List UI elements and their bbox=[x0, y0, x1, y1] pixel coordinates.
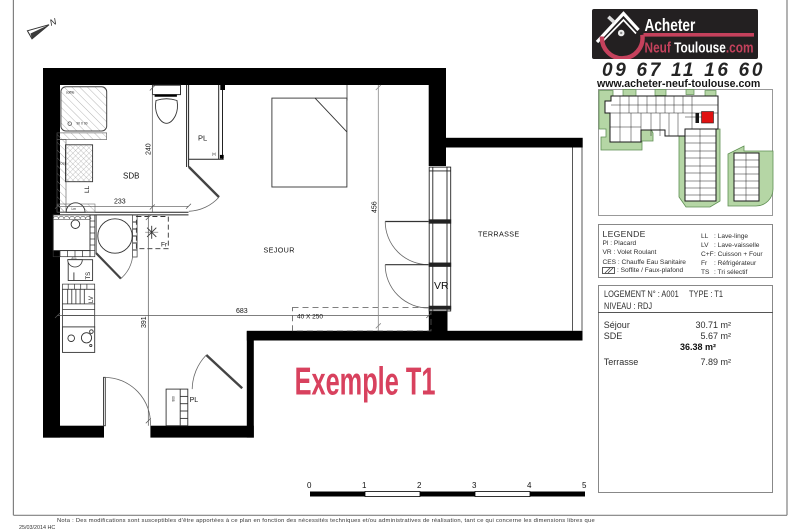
svg-text:dim: dim bbox=[72, 256, 77, 260]
svg-text:SDB: SDB bbox=[123, 172, 139, 181]
svg-text:240: 240 bbox=[146, 143, 153, 155]
svg-text:2: 2 bbox=[417, 481, 422, 490]
svg-text:PL: PL bbox=[190, 397, 199, 404]
svg-text:1: 1 bbox=[362, 481, 367, 490]
svg-text:Exemple T1: Exemple T1 bbox=[295, 359, 436, 403]
svg-text:391: 391 bbox=[141, 316, 148, 328]
svg-text:456: 456 bbox=[371, 201, 378, 213]
svg-text:683: 683 bbox=[236, 308, 248, 315]
svg-text:SEJOUR: SEJOUR bbox=[264, 246, 295, 255]
svg-text:soffite: soffite bbox=[66, 91, 75, 95]
svg-text:90 X 90: 90 X 90 bbox=[77, 122, 88, 126]
svg-text:Fr: Fr bbox=[161, 242, 168, 249]
svg-text:LL: LL bbox=[84, 185, 91, 193]
svg-text:PL: PL bbox=[198, 134, 207, 143]
svg-text:VR: VR bbox=[434, 280, 449, 292]
svg-text:233: 233 bbox=[114, 199, 126, 206]
svg-text:800: 800 bbox=[172, 396, 176, 402]
svg-text:TERRASSE: TERRASSE bbox=[478, 230, 520, 239]
svg-text:N: N bbox=[48, 16, 58, 28]
svg-text:TS: TS bbox=[86, 272, 92, 280]
svg-text:Ces: Ces bbox=[60, 162, 66, 166]
svg-text:5: 5 bbox=[582, 481, 587, 490]
svg-text:0: 0 bbox=[307, 481, 312, 490]
svg-text:LV: LV bbox=[89, 296, 95, 303]
svg-text:3: 3 bbox=[472, 481, 477, 490]
svg-text:Neuf Toulouse.com: Neuf Toulouse.com bbox=[645, 39, 754, 56]
svg-text:40 X 250: 40 X 250 bbox=[297, 314, 323, 321]
svg-text:4: 4 bbox=[527, 481, 532, 490]
svg-text:Lm: Lm bbox=[72, 207, 77, 211]
svg-text:Acheter: Acheter bbox=[645, 17, 696, 36]
svg-text:(x): (x) bbox=[212, 152, 216, 156]
